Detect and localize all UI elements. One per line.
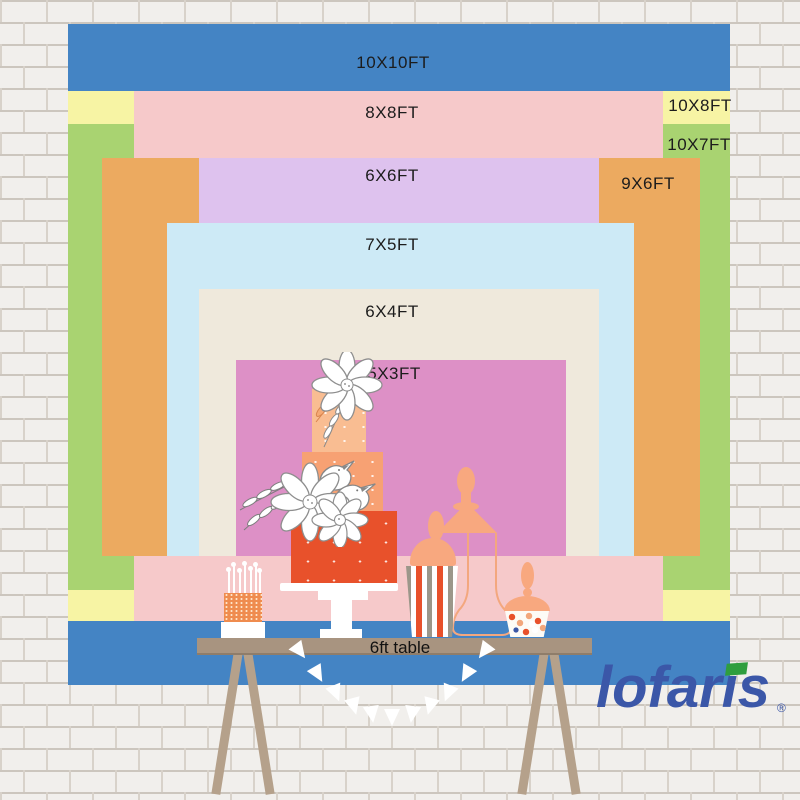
popcorn-striped-box <box>406 566 458 637</box>
flower-top-icon <box>312 352 382 420</box>
cake-pops-treat-block <box>224 593 262 622</box>
cake-stand-stem <box>331 600 352 629</box>
backdrop-size-chart: 10X10FT 8X8FT 10X8FT 10X7FT 6X6FT 9X6FT … <box>0 0 800 800</box>
size-label-6x4: 6X4FT <box>365 302 419 322</box>
size-label-10x8: 10X8FT <box>668 96 731 116</box>
registered-trademark-icon: ® <box>777 701 786 715</box>
table-size-label: 6ft table <box>370 638 431 658</box>
cake-stand-plate <box>280 583 398 591</box>
size-label-10x7: 10X7FT <box>667 135 730 155</box>
candy-jar-finial-icon <box>521 562 534 589</box>
size-label-6x6: 6X6FT <box>365 166 419 186</box>
logo-green-flag-icon <box>725 662 748 675</box>
cake-stand-base <box>320 629 362 638</box>
candy-jar-bowl <box>505 611 549 637</box>
cake-stand-step <box>318 591 368 600</box>
size-label-10x10: 10X10FT <box>356 53 429 73</box>
jar-finial-icon <box>457 467 475 495</box>
size-label-7x5: 7X5FT <box>365 235 419 255</box>
popcorn-lid-finial-icon <box>428 511 444 541</box>
flower-cluster-icon <box>271 463 368 547</box>
cake-pops-box <box>221 622 265 638</box>
size-label-8x8: 8X8FT <box>365 103 419 123</box>
size-label-9x6: 9X6FT <box>621 174 675 194</box>
cake-flowers-and-birds <box>238 352 406 547</box>
